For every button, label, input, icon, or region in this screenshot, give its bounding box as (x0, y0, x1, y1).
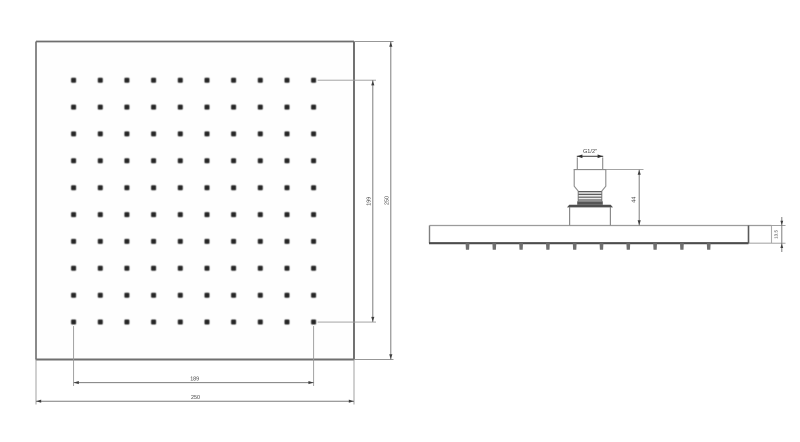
svg-text:189: 189 (190, 377, 199, 383)
svg-text:250: 250 (191, 395, 200, 401)
svg-text:G1/2″: G1/2″ (583, 149, 597, 155)
svg-text:199: 199 (367, 197, 373, 206)
svg-text:44: 44 (632, 197, 638, 203)
svg-text:250: 250 (385, 196, 391, 205)
svg-text:13.5: 13.5 (774, 229, 779, 238)
